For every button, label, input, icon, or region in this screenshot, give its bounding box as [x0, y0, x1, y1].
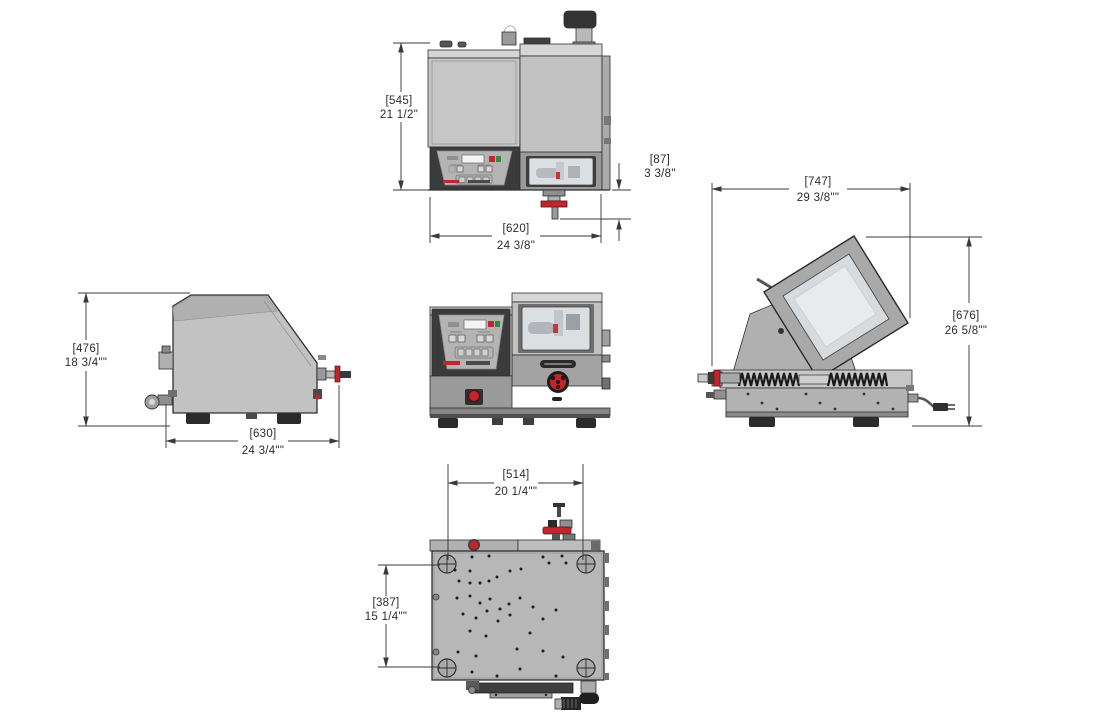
- brand-red: [443, 180, 459, 183]
- panel-button: [478, 166, 484, 172]
- emergency-stop-top: [470, 541, 479, 550]
- panel-button: [477, 335, 484, 342]
- side-view: [145, 295, 351, 424]
- drawing-svg: [545] 21 1/2" [87] 3 3/8" [620] 24 3/8": [0, 0, 1102, 722]
- lid-stub: [757, 279, 772, 288]
- base-plate: [432, 551, 604, 680]
- foot: [853, 417, 879, 427]
- side-height-dim-mm: [476]: [72, 343, 99, 355]
- drain-height-dim-in: 3 3/8": [644, 168, 675, 180]
- side-depth-dim-mm: [630]: [249, 428, 276, 440]
- iso-open-height-dim-in: 26 5/8"": [945, 325, 988, 337]
- foot: [438, 418, 458, 428]
- panel-button: [466, 349, 472, 356]
- iso-open-height-dim-mm: [676]: [952, 310, 979, 322]
- power-cord: [918, 398, 934, 407]
- iso-depth-dim-mm: [747]: [804, 176, 831, 188]
- drain-collar: [543, 190, 565, 196]
- spray-valve: [543, 527, 571, 534]
- drain-fitting: [908, 394, 918, 402]
- display: [464, 320, 486, 329]
- cap-strip: [512, 293, 602, 302]
- latch: [552, 397, 562, 401]
- brand-mark: [447, 156, 458, 160]
- green-indicator: [495, 321, 500, 327]
- drain-valve: [541, 201, 567, 207]
- plug: [933, 403, 948, 411]
- brand-red: [443, 361, 460, 365]
- foot: [277, 413, 301, 424]
- panel-button: [486, 335, 493, 342]
- green-indicator: [496, 156, 501, 162]
- front-elevation-view: [428, 11, 611, 219]
- cap-strip: [428, 50, 520, 58]
- front-width-dim-mm: [620]: [502, 223, 529, 235]
- side-fitting: [159, 352, 173, 369]
- drain-spout: [552, 207, 558, 219]
- feed-handwheel: [714, 370, 720, 386]
- panel-button: [474, 349, 480, 356]
- brand-dark: [466, 361, 490, 365]
- foot: [749, 417, 775, 427]
- top-depth-dim-in: 15 1/4"": [365, 611, 408, 623]
- side-depth-dim-in: 24 3/4"": [242, 445, 285, 457]
- emergency-stop-button: [469, 391, 480, 402]
- front-view: [430, 293, 610, 428]
- brand-dark: [468, 180, 490, 183]
- display: [462, 155, 484, 163]
- top-fitting: [440, 41, 452, 47]
- top-width-dim-mm: [514]: [502, 469, 529, 481]
- top-view: [430, 503, 607, 710]
- top-width-dim-in: 20 1/4"": [495, 486, 538, 498]
- drain-height-dim-mm: [87]: [650, 154, 670, 166]
- lift-handle: [504, 26, 516, 32]
- panel-button: [458, 349, 464, 356]
- panel-button: [457, 166, 463, 172]
- red-indicator: [488, 321, 494, 327]
- table-bar: [799, 375, 829, 384]
- panel-button: [459, 177, 465, 183]
- panel-button: [458, 335, 465, 342]
- feed-handwheel: [335, 366, 340, 382]
- top-depth-dim-mm: [387]: [372, 597, 399, 609]
- brand-mark: [448, 322, 459, 327]
- iso-depth-dim-in: 29 3/8"": [797, 192, 840, 204]
- drain-pipe: [581, 681, 596, 693]
- drain-elbow: [579, 693, 599, 704]
- panel-button: [482, 349, 488, 356]
- side-height-dim-in: 18 3/4"": [65, 357, 108, 369]
- front-height-dim-mm: [545]: [385, 95, 412, 107]
- exhaust-elbow: [564, 11, 596, 28]
- technical-drawing-sheet: [545] 21 1/2" [87] 3 3/8" [620] 24 3/8": [0, 0, 1102, 722]
- cap-strip: [520, 44, 602, 56]
- red-indicator: [489, 156, 495, 162]
- front-width-dim-in: 24 3/8": [497, 240, 535, 252]
- front-height-dim-in: 21 1/2": [380, 109, 418, 121]
- foot: [186, 413, 210, 424]
- panel-button: [486, 166, 492, 172]
- lid-open-view: [698, 236, 955, 427]
- panel-button: [449, 335, 456, 342]
- foot: [576, 418, 596, 428]
